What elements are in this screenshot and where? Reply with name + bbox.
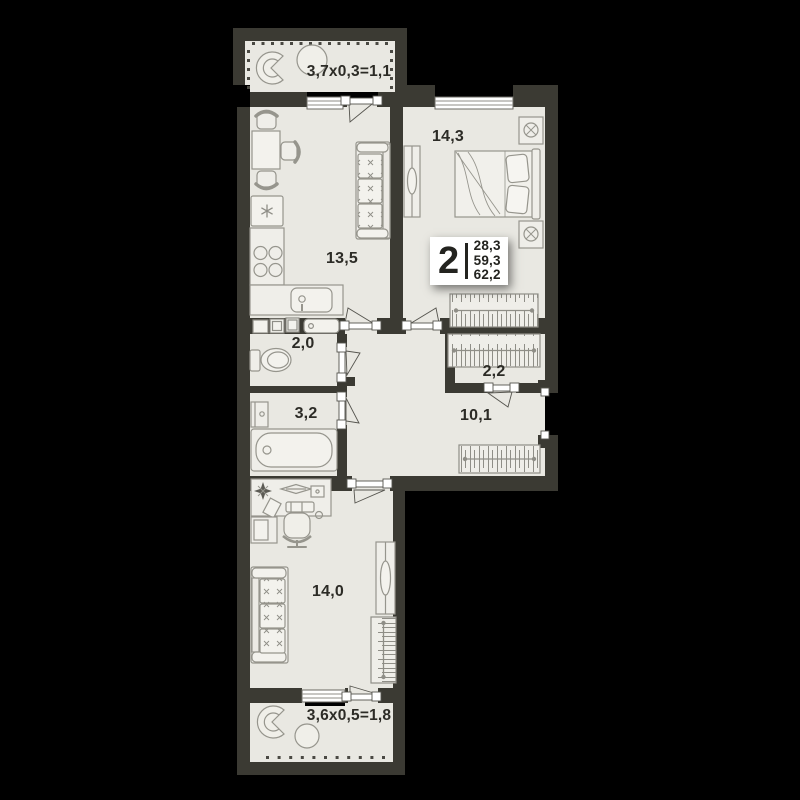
hallway-area-label: 10,1 [460, 407, 492, 425]
balcony-top-dimension-label: 3,7х0,3=1,1 [307, 63, 392, 81]
nightstand-top [519, 117, 543, 144]
room-sofa [251, 567, 288, 663]
badge-areas: 28,3 59,3 62,2 [474, 239, 501, 283]
hallway-wardrobe [459, 445, 540, 473]
floorplan-drawing [0, 0, 800, 800]
area-value-2: 59,3 [474, 254, 501, 269]
bed [455, 149, 540, 219]
bathroom-area-label: 3,2 [295, 405, 318, 423]
area-value-3: 62,2 [474, 268, 501, 283]
nightstand-bottom [519, 221, 543, 248]
wc-area-label: 2,0 [292, 335, 315, 353]
badge-divider [465, 243, 468, 279]
room-window [302, 690, 345, 702]
room-cabinet [251, 517, 277, 543]
bedroom-dresser [404, 146, 420, 217]
kitchen-sofa [356, 142, 390, 239]
bathroom-sink [251, 402, 268, 427]
floorplan-canvas: 3,7х0,3=1,1 14,3 13,5 2,0 2,2 3,2 10,1 1… [0, 0, 800, 800]
room-wardrobe-mirror [376, 542, 395, 614]
wc-counter-units [253, 318, 339, 333]
bedroom-wardrobe [450, 294, 538, 327]
bedroom-area-label: 14,3 [432, 128, 464, 146]
toilet [250, 349, 291, 372]
bathtub [251, 429, 337, 471]
bedroom-window [435, 97, 513, 109]
balcony-bottom-table [295, 724, 319, 748]
room-wardrobe-hangers [371, 617, 396, 683]
cooktop [250, 228, 284, 285]
kitchen-counter-sink [250, 285, 343, 315]
desk-keyboard [286, 502, 314, 512]
kitchen-area-label: 13,5 [326, 250, 358, 268]
fridge [251, 196, 283, 226]
unit-info-badge: 2 28,3 59,3 62,2 [430, 237, 508, 285]
closet-area-label: 2,2 [483, 363, 506, 381]
area-value-1: 28,3 [474, 239, 501, 254]
kitchen-window [307, 97, 343, 109]
room-count: 2 [438, 242, 459, 280]
room-area-label: 14,0 [312, 583, 344, 601]
desk-speaker [311, 486, 324, 497]
balcony-bottom-dimension-label: 3,6х0,5=1,8 [307, 707, 392, 725]
